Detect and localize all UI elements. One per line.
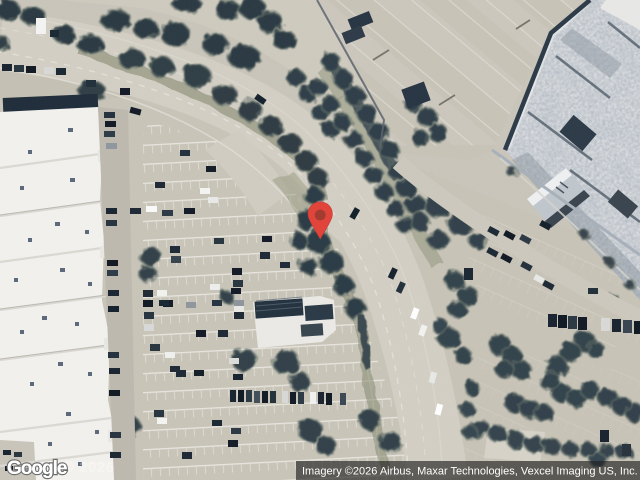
- svg-text:Google: Google: [7, 458, 67, 479]
- svg-text:© 2026: © 2026: [63, 459, 115, 476]
- svg-text:Imagery ©2026 Airbus, Maxar Te: Imagery ©2026 Airbus, Maxar Technologies…: [302, 466, 638, 478]
